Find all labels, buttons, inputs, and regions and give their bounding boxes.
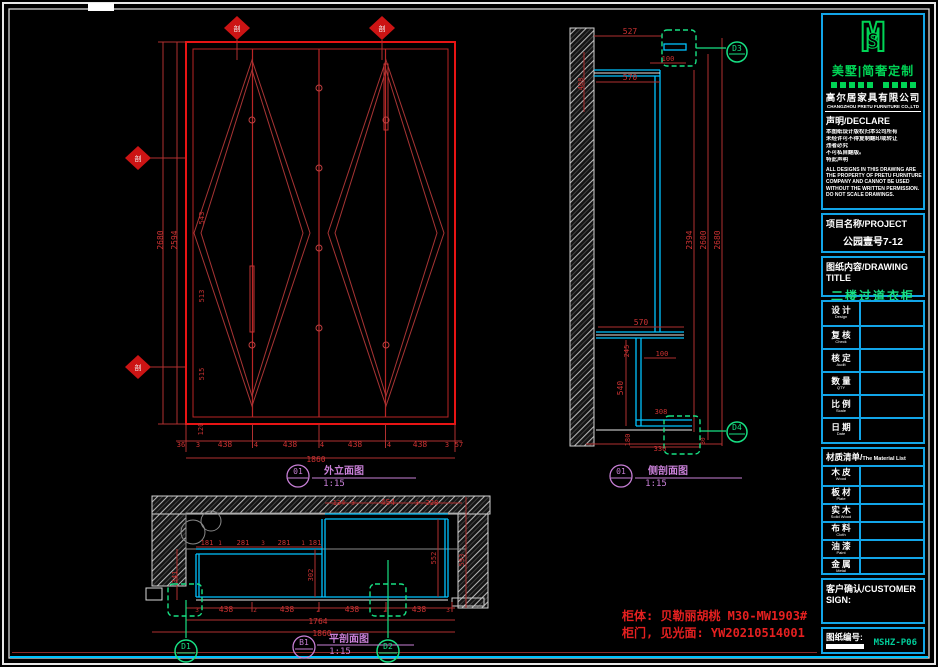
dim-text: 3 <box>195 607 199 614</box>
material-value-cell <box>861 487 923 503</box>
declare-line: 本图纸设计版权归本公司所有 <box>823 129 923 136</box>
customer-sign-box: 客户确认/CUSTOMER SIGN: <box>821 578 925 624</box>
material-label-en: Wood <box>823 477 859 482</box>
material-label-en: Solid Wood <box>823 515 859 520</box>
section-marker-label: 剖 <box>135 363 142 372</box>
material-value-cell <box>861 523 923 539</box>
material-value-cell <box>861 559 923 575</box>
project-box: 项目名称/PROJECT 公园壹号7-12 <box>821 213 925 253</box>
declare-line: 违者必究 <box>823 143 923 150</box>
material-list: 材质清单/The Material List 木 皮Wood 板 材Plate … <box>821 447 925 575</box>
info-value-cell <box>861 302 923 325</box>
view-scale: 1:15 <box>329 647 351 657</box>
dim-text: 4 <box>320 441 324 449</box>
cad-sheet: 2680259454351351512036343844384438443835… <box>0 0 938 667</box>
info-label-en: Scale <box>823 409 859 414</box>
info-value-cell <box>861 327 923 348</box>
info-row-scale: 比 例Scale <box>823 394 923 417</box>
drawing-title-box: 图纸内容/DRAWING TITLE 二楼过道衣柜 <box>821 256 925 297</box>
dim-text: 438 <box>348 440 363 449</box>
dim-text: 180 <box>624 434 632 447</box>
material-value-cell <box>861 467 923 485</box>
info-label-en: QTY <box>823 386 859 391</box>
dim-text: 245 <box>623 345 631 358</box>
dim-text: 570 <box>634 318 649 327</box>
dim-text: 570 <box>623 73 638 82</box>
dim-text: 3 <box>196 441 200 449</box>
dim-text: 513 <box>198 290 206 303</box>
section-marker-label: 剖 <box>135 154 142 163</box>
dim-text: 4 <box>254 441 258 449</box>
declare-line-en: DO NOT SCALE DRAWINGS. <box>823 192 923 198</box>
view-bubble: B1 <box>299 638 309 647</box>
dim-text: 1 <box>218 540 222 547</box>
dim-text: 3 <box>445 441 449 449</box>
dim-text: 281 <box>237 539 250 547</box>
info-value-cell <box>861 419 923 440</box>
material-label-en: Paint <box>823 551 859 556</box>
dim-text: 3 <box>415 500 419 507</box>
dim-text: 330 <box>654 445 667 453</box>
drawing-number-underline <box>826 644 864 649</box>
detail-bubble: D1 <box>181 642 191 651</box>
project-value: 公园壹号7-12 <box>823 233 923 248</box>
dim-text: 120 <box>197 423 205 436</box>
view-scale: 1:15 <box>645 479 667 489</box>
info-label-en: Date <box>823 432 859 437</box>
dim-text: 228 <box>426 499 439 507</box>
wall-hatch <box>152 496 490 514</box>
dim-text: 3 <box>351 500 355 507</box>
frame-tab <box>88 3 114 11</box>
titleblock-header-box: M S 美墅|简奢定制 高尔居家具有限公司 CHANGZHOU PRETU FU… <box>821 13 925 210</box>
dim-text: 540 <box>616 381 625 396</box>
note-cabinet-door: 柜门, 见光面: YW20210514001 <box>621 625 805 640</box>
dim-text: 181 <box>309 539 322 547</box>
info-row-date: 日 期Date <box>823 417 923 440</box>
detail-bubble: D2 <box>383 642 393 651</box>
dim-text: 2680 <box>713 230 722 249</box>
pv-detail-leaders <box>186 560 388 638</box>
note-cabinet-body: 柜体: 贝勒丽胡桃 M30-MW1903# <box>621 608 808 623</box>
info-value-cell <box>861 396 923 417</box>
brand-name: 美墅|简奢定制 <box>823 62 923 79</box>
dim-text: 593 <box>458 554 466 567</box>
dim-text: 308 <box>655 408 668 416</box>
view-title: 平剖面图 <box>329 632 369 645</box>
declare-line-en: WITHOUT THE WRITTEN PERMISSION. <box>823 186 923 192</box>
info-row-check: 复 核Check <box>823 325 923 348</box>
pv-corner-marker <box>146 588 162 600</box>
view-bubble: 01 <box>616 467 626 476</box>
dim-text: 2600 <box>699 230 708 249</box>
dim-text: 1 <box>301 540 305 547</box>
dim-text: 36 <box>177 441 185 449</box>
material-row: 油 漆Paint <box>823 539 923 557</box>
dim-fe-height: 2594 <box>170 230 179 249</box>
pv-cabinet-panels <box>196 514 448 597</box>
dim-text: 515 <box>198 368 206 381</box>
info-value-cell <box>861 373 923 394</box>
dim-text: 3 <box>446 607 450 614</box>
info-table: 设 计Design 复 核Check 核 定Audit 数 量QTY 比 例Sc… <box>821 300 925 444</box>
info-label-en: Check <box>823 340 859 345</box>
dim-text: 438 <box>345 605 360 614</box>
dim-text: 134 <box>333 499 346 507</box>
view-scale: 1:15 <box>323 479 345 489</box>
material-row: 板 材Plate <box>823 485 923 503</box>
info-value-cell <box>861 350 923 371</box>
info-label-en: Audit <box>823 363 859 368</box>
side-section-view <box>570 28 747 487</box>
declare-line: 不可私自翻版。 <box>823 150 923 157</box>
company-name-en: CHANGZHOU PRETU FURNITURE CO.,LTD <box>825 104 921 112</box>
sv-cabinet-panels <box>594 44 692 426</box>
dim-fe-total: 1860 <box>306 455 325 464</box>
declare-line: 未经许可不得复制翻印或转让 <box>823 136 923 143</box>
info-row-design: 设 计Design <box>823 302 923 325</box>
dim-text: 2 <box>383 607 387 614</box>
section-cut-markers <box>125 16 395 379</box>
material-row: 金 属Metal <box>823 557 923 575</box>
drawing-number-value: MSHZ-P06 <box>874 638 917 648</box>
wall-hatch <box>152 514 186 586</box>
drawing-canvas: 2680259454351351512036343844384438443835… <box>0 0 938 667</box>
dim-text: 3 <box>261 540 265 547</box>
material-row: 实 木Solid Wood <box>823 503 923 521</box>
material-value-cell <box>861 505 923 521</box>
customer-sign-header: 客户确认/CUSTOMER SIGN: <box>823 580 923 605</box>
dim-pv-total: 1764 <box>308 617 327 626</box>
dim-text: 57 <box>455 441 463 449</box>
dim-text: 552 <box>430 552 438 565</box>
dim-text: 302 <box>307 569 315 582</box>
dim-text: 2 <box>253 607 257 614</box>
dim-text: 30 <box>700 437 707 445</box>
info-label-en: Design <box>823 315 859 320</box>
declare-line: 特此声明 <box>823 157 923 164</box>
detail-bubble: D3 <box>732 44 742 53</box>
dim-text: 2 <box>316 607 320 614</box>
dim-text: 438 <box>412 605 427 614</box>
dim-text: 341 <box>171 571 179 584</box>
material-value-cell <box>861 541 923 557</box>
material-row: 布 料Cloth <box>823 521 923 539</box>
drawing-number-box: 图纸编号: MSHZ-P06 <box>821 627 925 654</box>
dim-text: 100 <box>656 350 669 358</box>
dim-text: 543 <box>198 212 206 225</box>
dim-text: 527 <box>623 27 638 36</box>
section-marker-label: 剖 <box>234 24 241 33</box>
material-label-en: Cloth <box>823 533 859 538</box>
section-marker-label: 剖 <box>379 24 386 33</box>
drawing-title-header: 图纸内容/DRAWING TITLE <box>823 258 923 283</box>
dim-text: 281 <box>278 539 291 547</box>
sv-white-lines <box>594 73 692 430</box>
detail-bubble: D4 <box>732 423 742 432</box>
view-bubble: 01 <box>293 467 303 476</box>
fe-dimension-lines <box>150 40 462 458</box>
project-header: 项目名称/PROJECT <box>823 215 923 230</box>
dim-fe-height: 2680 <box>156 230 165 249</box>
brand-squares <box>823 82 923 88</box>
front-elevation-view <box>125 16 462 487</box>
dim-text: 408 <box>577 78 585 91</box>
material-row: 木 皮Wood <box>823 467 923 485</box>
dim-text: 438 <box>219 605 234 614</box>
view-title: 外立面图 <box>323 464 364 477</box>
dim-text: 454 <box>381 498 396 507</box>
dim-text: 438 <box>280 605 295 614</box>
dim-text: 4 <box>387 441 391 449</box>
logo-s: S <box>867 29 879 53</box>
company-name-zh: 高尔居家具有限公司 <box>823 90 923 104</box>
dim-text: 100 <box>662 55 675 63</box>
info-row-audit: 核 定Audit <box>823 348 923 371</box>
material-list-header: 材质清单/The Material List <box>823 449 923 467</box>
declare-line-en: COMPANY AND CANNOT BE USED <box>823 179 923 185</box>
dim-text: 2394 <box>685 230 694 249</box>
company-logo: M S <box>823 15 923 64</box>
declare-header: 声明/DECLARE <box>823 112 923 129</box>
material-label-en: Plate <box>823 497 859 502</box>
dim-text: 438 <box>413 440 428 449</box>
view-title: 侧剖面图 <box>648 464 688 477</box>
info-row-qty: 数 量QTY <box>823 371 923 394</box>
dim-text: 181 <box>201 539 214 547</box>
dim-text: 438 <box>218 440 233 449</box>
material-label-en: Metal <box>823 569 859 574</box>
dim-text: 438 <box>283 440 298 449</box>
